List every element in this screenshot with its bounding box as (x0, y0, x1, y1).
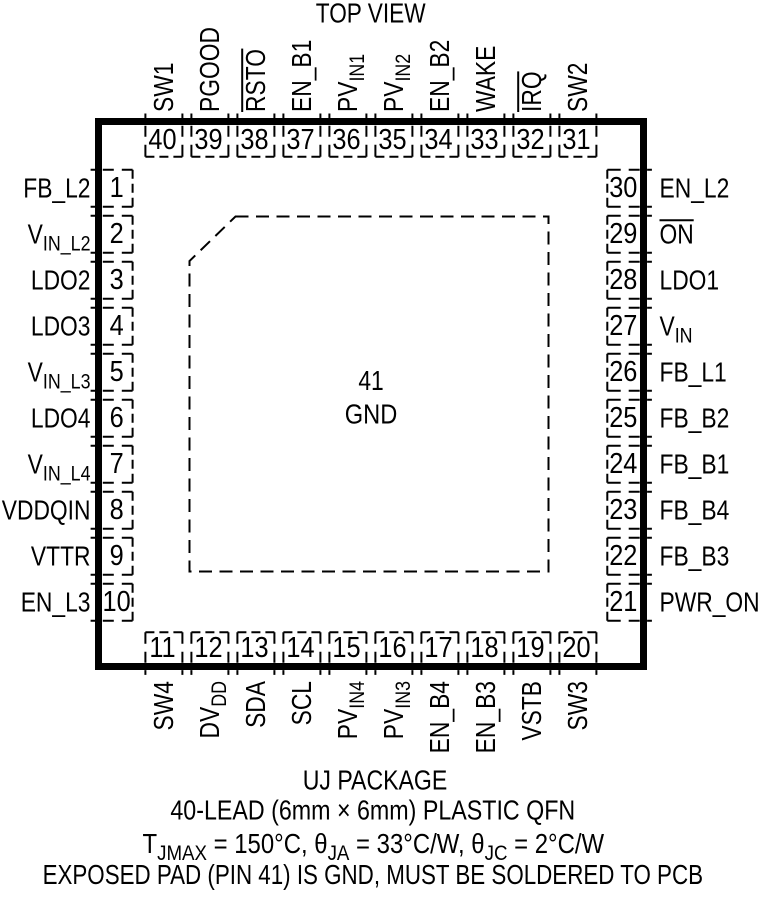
svg-text:LDO4: LDO4 (31, 403, 91, 433)
svg-text:VIN_L2: VIN_L2 (28, 219, 91, 255)
svg-text:DVDD: DVDD (195, 681, 231, 738)
svg-text:41: 41 (358, 366, 383, 396)
svg-text:36: 36 (332, 123, 360, 156)
svg-text:WAKE: WAKE (471, 46, 501, 112)
svg-text:14: 14 (286, 630, 314, 663)
svg-text:11: 11 (149, 630, 175, 663)
svg-text:SCL: SCL (287, 681, 317, 725)
svg-text:21: 21 (609, 584, 637, 617)
svg-text:33: 33 (470, 123, 498, 156)
svg-text:18: 18 (470, 630, 498, 663)
svg-text:VIN_L4: VIN_L4 (28, 449, 91, 485)
svg-text:UJ PACKAGE: UJ PACKAGE (303, 766, 447, 796)
svg-text:LDO3: LDO3 (31, 311, 91, 341)
svg-text:10: 10 (103, 584, 131, 617)
svg-text:30: 30 (609, 170, 637, 203)
svg-text:PVIN2: PVIN2 (379, 54, 415, 112)
svg-text:EN_B2: EN_B2 (425, 40, 455, 112)
svg-text:20: 20 (562, 630, 590, 663)
svg-text:SDA: SDA (241, 681, 271, 728)
svg-text:VIN_L3: VIN_L3 (28, 357, 91, 393)
svg-text:5: 5 (110, 354, 124, 387)
svg-text:FB_B4: FB_B4 (660, 495, 730, 525)
svg-text:12: 12 (194, 630, 222, 663)
svg-text:VTTR: VTTR (31, 541, 91, 571)
svg-text:PWR_ON: PWR_ON (660, 587, 760, 617)
svg-text:PVIN1: PVIN1 (333, 54, 369, 112)
svg-text:FB_B1: FB_B1 (660, 449, 730, 479)
svg-text:7: 7 (110, 446, 124, 479)
svg-text:31: 31 (562, 123, 590, 156)
svg-text:PGOOD: PGOOD (195, 27, 225, 112)
svg-text:EN_B3: EN_B3 (471, 681, 501, 753)
svg-text:32: 32 (516, 123, 544, 156)
svg-text:EN_B1: EN_B1 (287, 40, 317, 112)
svg-text:PVIN4: PVIN4 (333, 681, 369, 739)
svg-text:VIN: VIN (660, 311, 693, 347)
svg-text:26: 26 (609, 354, 637, 387)
svg-text:FB_B2: FB_B2 (660, 403, 730, 433)
svg-text:23: 23 (609, 492, 637, 525)
svg-text:RSTO: RSTO (241, 49, 271, 112)
svg-text:FB_L2: FB_L2 (23, 173, 90, 203)
svg-text:17: 17 (424, 630, 452, 663)
svg-text:SW4: SW4 (149, 681, 179, 730)
svg-text:LDO2: LDO2 (31, 265, 91, 295)
svg-text:28: 28 (609, 262, 637, 295)
svg-text:2: 2 (110, 216, 124, 249)
svg-text:4: 4 (110, 308, 124, 341)
svg-text:40-LEAD (6mm × 6mm) PLASTIC QF: 40-LEAD (6mm × 6mm) PLASTIC QFN (170, 796, 575, 826)
svg-text:16: 16 (378, 630, 406, 663)
svg-text:LDO1: LDO1 (660, 265, 720, 295)
svg-text:1: 1 (110, 170, 124, 203)
svg-text:34: 34 (424, 123, 452, 156)
svg-text:22: 22 (609, 538, 637, 571)
svg-text:25: 25 (609, 400, 637, 433)
svg-text:EN_L2: EN_L2 (660, 173, 730, 203)
svg-text:27: 27 (609, 308, 637, 341)
svg-text:39: 39 (194, 123, 222, 156)
svg-text:EXPOSED PAD (PIN 41) IS GND, M: EXPOSED PAD (PIN 41) IS GND, MUST BE SOL… (43, 860, 703, 891)
svg-text:3: 3 (110, 262, 124, 295)
svg-text:8: 8 (110, 492, 124, 525)
svg-text:GND: GND (345, 400, 398, 430)
svg-text:PVIN3: PVIN3 (379, 681, 415, 739)
svg-text:37: 37 (286, 123, 314, 156)
svg-text:ON: ON (660, 219, 694, 249)
svg-text:SW2: SW2 (563, 63, 593, 112)
svg-text:35: 35 (378, 123, 406, 156)
svg-text:TOP VIEW: TOP VIEW (316, 0, 426, 29)
svg-text:FB_B3: FB_B3 (660, 541, 730, 571)
svg-text:9: 9 (110, 538, 124, 571)
svg-text:VDDQIN: VDDQIN (2, 495, 91, 525)
svg-text:13: 13 (240, 630, 268, 663)
svg-text:IRQ: IRQ (517, 71, 547, 112)
svg-text:24: 24 (609, 446, 637, 479)
svg-text:15: 15 (332, 630, 360, 663)
svg-text:VSTB: VSTB (517, 681, 547, 741)
svg-text:SW1: SW1 (149, 63, 179, 112)
svg-text:FB_L1: FB_L1 (660, 357, 727, 387)
svg-text:40: 40 (148, 123, 176, 156)
svg-text:29: 29 (609, 216, 637, 249)
svg-text:SW3: SW3 (563, 681, 593, 730)
svg-text:38: 38 (240, 123, 268, 156)
svg-text:6: 6 (110, 400, 124, 433)
svg-text:EN_L3: EN_L3 (21, 587, 91, 617)
svg-text:EN_B4: EN_B4 (425, 681, 455, 753)
svg-text:19: 19 (516, 630, 544, 663)
